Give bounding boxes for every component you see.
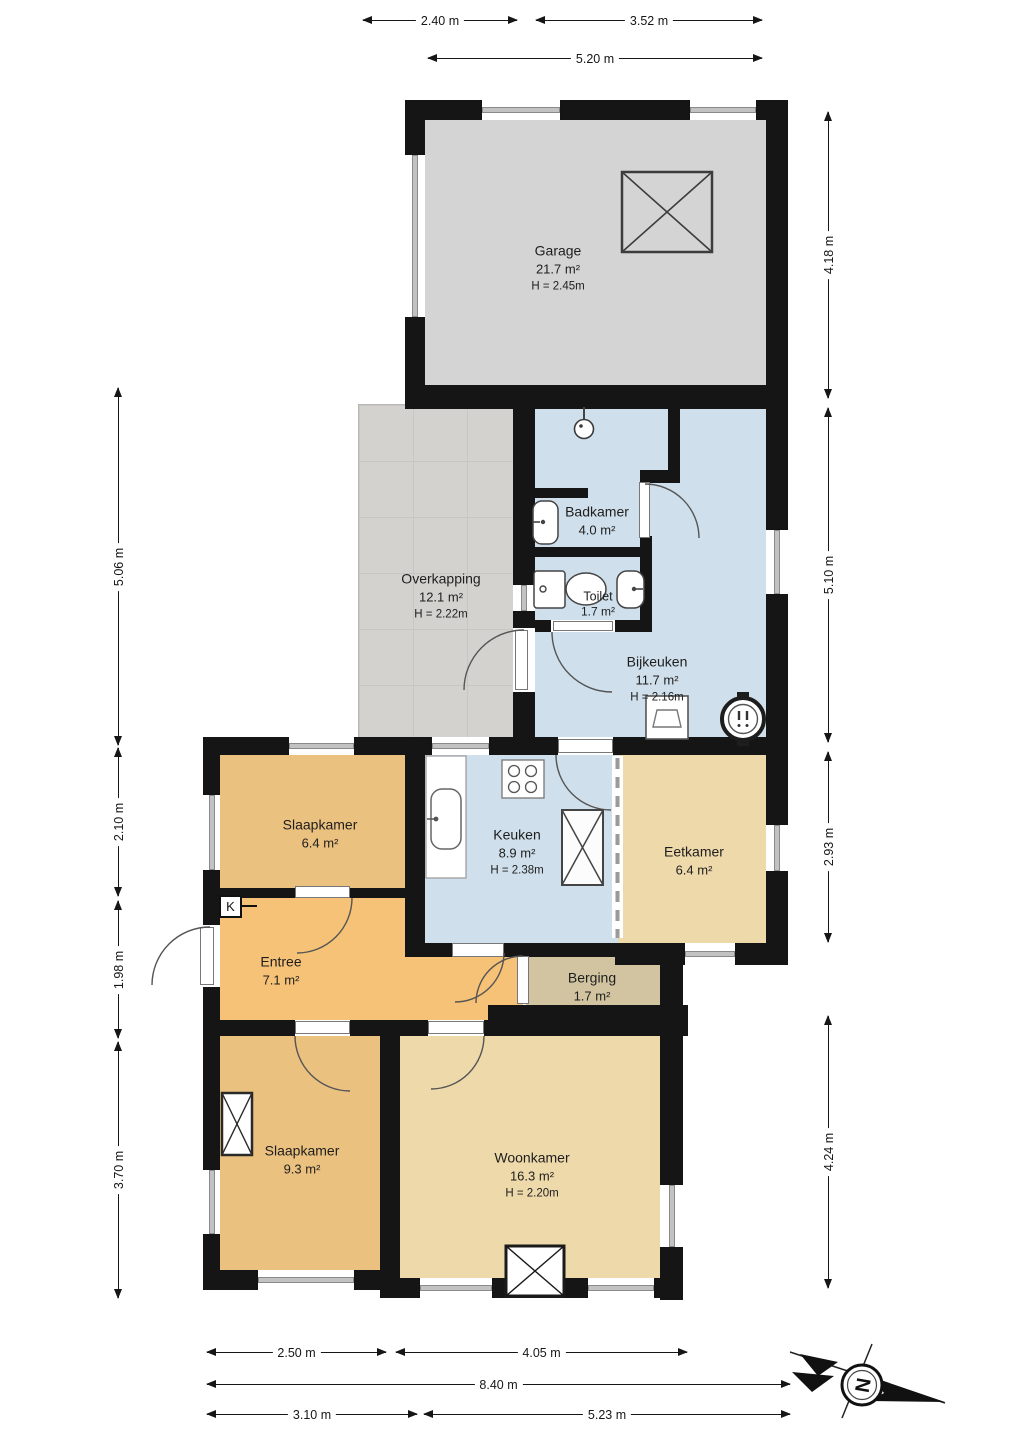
label-slaapkamer-boven: Slaapkamer6.4 m² (283, 816, 358, 853)
label-eetkamer: Eetkamer6.4 m² (664, 843, 724, 880)
roof-window-icon (622, 172, 712, 252)
dim-right-418: 4.18 m (828, 112, 829, 398)
label-garage: Garage21.7 m²H = 2.45m (531, 242, 584, 295)
label-toilet: Toilet 1.7 m² (581, 589, 615, 620)
label-keuken: Keuken8.9 m²H = 2.38m (490, 826, 543, 879)
dim-bottom-310: 3.10 m (207, 1414, 417, 1415)
label-entree: Entree7.1 m² (260, 953, 301, 990)
dim-left-370: 3.70 m (118, 1042, 119, 1298)
label-bijkeuken: Bijkeuken11.7 m²H = 2.16m (627, 653, 688, 706)
bathroom-sink-icon (533, 501, 558, 544)
toilet-sink-icon (617, 571, 644, 608)
toilet-basin-icon (534, 571, 565, 608)
meter-cupboard-tick (242, 905, 257, 907)
meter-cupboard: K (219, 895, 242, 918)
dim-right-293: 2.93 m (828, 752, 829, 942)
dim-left-210: 2.10 m (118, 748, 119, 896)
dim-right-510: 5.10 m (828, 408, 829, 742)
label-woonkamer: Woonkamer16.3 m²H = 2.20m (494, 1149, 569, 1202)
dim-right-424: 4.24 m (828, 1016, 829, 1288)
keuken-roof-window-icon (562, 810, 603, 885)
kitchen-counter-icon (426, 756, 466, 878)
label-berging: Berging1.7 m² (568, 969, 616, 1006)
dim-bottom-405: 4.05 m (396, 1352, 687, 1353)
dim-bottom-840: 8.40 m (207, 1384, 790, 1385)
floorplan: N K Garage21.7 m²H = 2.45m Overkapping12… (0, 0, 1018, 1440)
stove-icon (502, 760, 544, 798)
label-badkamer: Badkamer4.0 m² (565, 503, 629, 540)
dim-left-506: 5.06 m (118, 388, 119, 745)
label-overkapping: Overkapping12.1 m²H = 2.22m (401, 570, 480, 623)
north-arrow: N (790, 1344, 945, 1418)
dim-bottom-523: 5.23 m (424, 1414, 790, 1415)
dim-left-198: 1.98 m (118, 901, 119, 1038)
chimney-slaapkamer-icon (222, 1093, 252, 1155)
dim-top-352: 3.52 m (536, 20, 762, 21)
dim-bottom-250: 2.50 m (207, 1352, 386, 1353)
shower-icon (575, 407, 594, 439)
ventilation-unit-icon (722, 692, 764, 746)
dim-top-240: 2.40 m (363, 20, 517, 21)
label-slaapkamer: Slaapkamer9.3 m² (265, 1142, 340, 1179)
dim-top-520: 5.20 m (428, 58, 762, 59)
chimney-woonkamer-icon (506, 1246, 564, 1296)
